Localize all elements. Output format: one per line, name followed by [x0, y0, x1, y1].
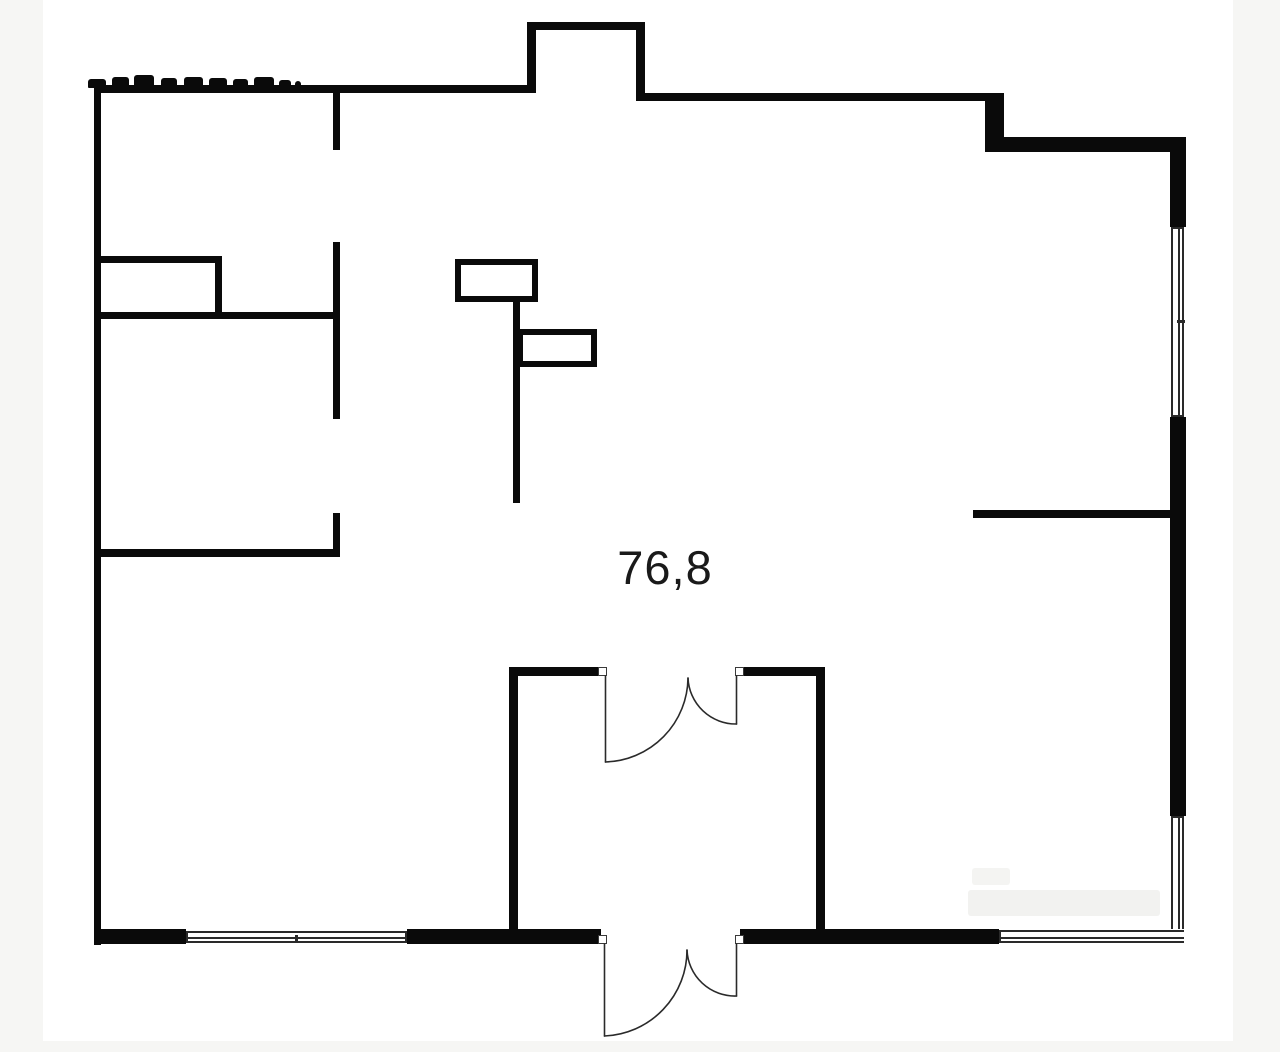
- partition-right-stub: [973, 510, 1170, 518]
- window-end-cap: [1171, 415, 1184, 417]
- page-margin-bottom: [0, 1041, 1280, 1052]
- wall-outer-bottom-mid: [407, 929, 601, 944]
- vestibule-wall-top-right: [742, 667, 825, 676]
- inner-door-left-arc: [606, 678, 689, 762]
- room-area-label: 76,8: [565, 540, 765, 596]
- entry-door-right-arc: [687, 950, 737, 996]
- shaft-box-upper: [455, 259, 538, 302]
- window-pane-line: [1182, 816, 1184, 945]
- door-jamb: [735, 667, 744, 676]
- wall-outer-bottom-right: [740, 929, 999, 944]
- watermark-smudge: [968, 890, 1160, 916]
- wall-outer-left: [94, 85, 101, 945]
- window-pane-line: [999, 937, 1184, 939]
- bay-wall-left: [527, 22, 536, 93]
- vestibule-wall-top-left: [509, 667, 602, 676]
- wall-outer-right-lower: [1170, 417, 1186, 816]
- window-pane-line: [186, 931, 407, 933]
- page-margin-right: [1233, 0, 1280, 1052]
- window-end-cap: [186, 931, 188, 943]
- window-pane-line: [1171, 816, 1173, 945]
- window-pane-line: [1178, 816, 1180, 945]
- wall-outer-bottom-left: [94, 929, 186, 944]
- window-mullion-tick: [295, 935, 298, 943]
- fixture-box-side-line: [215, 256, 222, 319]
- window-pane-line: [1171, 227, 1173, 417]
- window-corner-vertical: [1170, 816, 1186, 945]
- window-pane-line: [999, 930, 1184, 932]
- window-end-cap: [1171, 227, 1184, 229]
- window-pane-line: [999, 941, 1184, 943]
- partition-vertical-mid: [333, 242, 340, 419]
- fixture-box-top-line: [94, 256, 222, 263]
- window-mullion-tick: [1177, 320, 1185, 323]
- door-jamb: [598, 667, 607, 676]
- window-bottom-left: [186, 929, 407, 944]
- partition-vertical-top: [333, 93, 340, 150]
- vestibule-wall-right: [816, 667, 825, 944]
- floor-plan-canvas: 76,8: [0, 0, 1280, 1052]
- watermark-smudge: [972, 868, 1010, 885]
- wall-outer-top-right: [636, 93, 990, 101]
- entry-door-left-arc: [605, 950, 688, 1036]
- door-jamb: [735, 935, 744, 944]
- window-end-cap: [999, 930, 1001, 943]
- wall-outer-top-left: [94, 85, 536, 93]
- window-right: [1170, 227, 1186, 417]
- wall-step-connector: [985, 93, 1004, 152]
- window-end-cap: [405, 931, 407, 943]
- window-corner-horizontal: [999, 929, 1186, 945]
- partition-horizontal-lower: [94, 549, 340, 557]
- inner-door-right-arc: [688, 678, 737, 724]
- bay-wall-top: [527, 22, 645, 30]
- window-end-cap: [1171, 816, 1184, 818]
- wall-outer-top-thick: [1003, 137, 1186, 152]
- wall-outer-right-upper: [1170, 137, 1186, 227]
- shaft-box-lower: [517, 329, 597, 367]
- door-jamb: [598, 935, 607, 944]
- page-margin-left: [0, 0, 43, 1052]
- vestibule-wall-left: [509, 667, 518, 944]
- bay-wall-right: [636, 22, 645, 101]
